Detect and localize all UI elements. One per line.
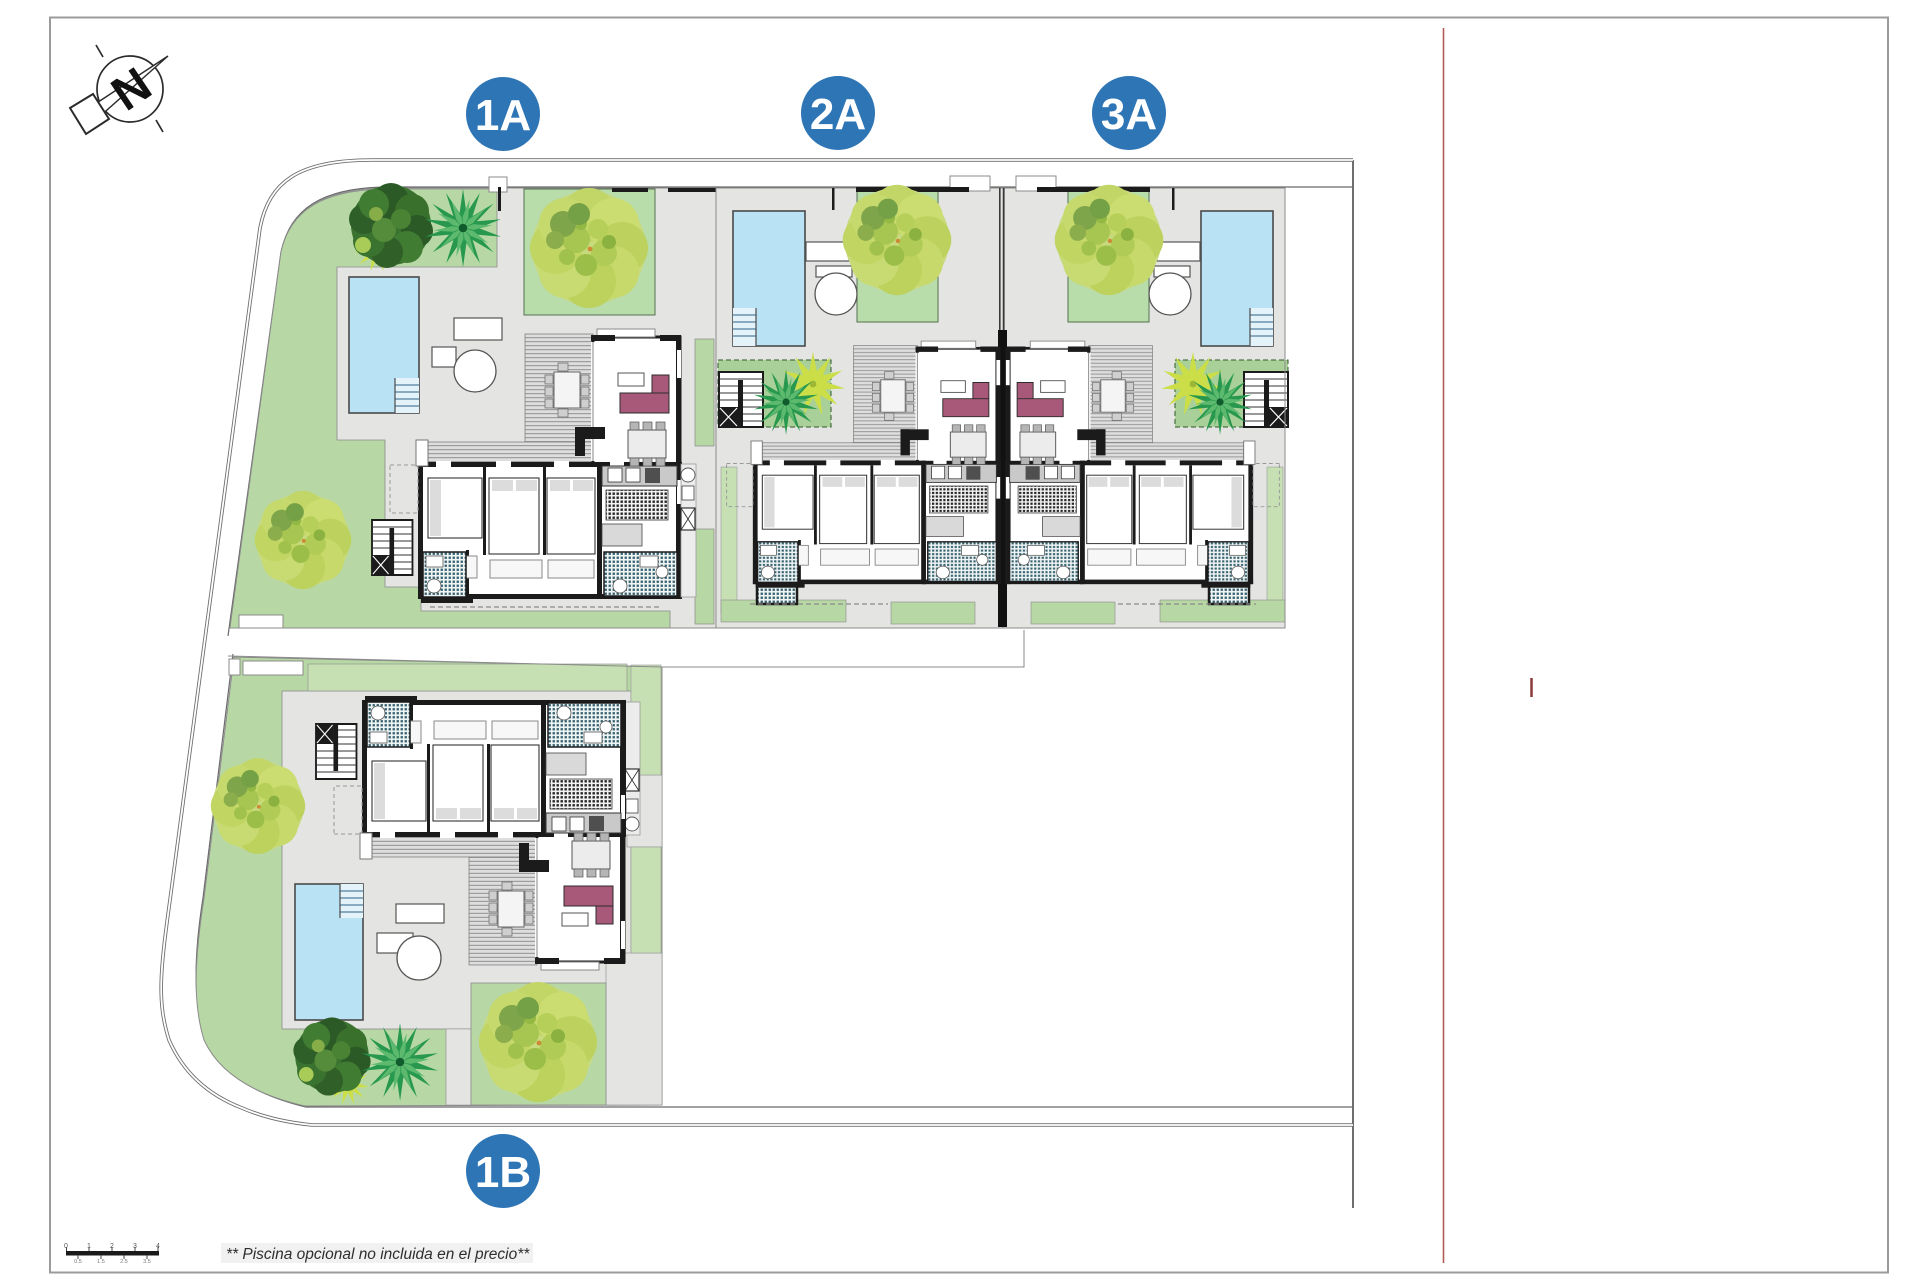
svg-text:0.5: 0.5 — [74, 1259, 82, 1265]
svg-text:3: 3 — [133, 1243, 137, 1250]
svg-text:** Piscina opcional no incluid: ** Piscina opcional no incluida en el pr… — [226, 1246, 530, 1263]
svg-text:2A: 2A — [810, 90, 866, 139]
svg-text:3.5: 3.5 — [143, 1259, 151, 1265]
svg-text:1: 1 — [87, 1243, 91, 1250]
svg-text:2: 2 — [110, 1243, 114, 1250]
svg-text:4: 4 — [156, 1243, 160, 1250]
svg-text:1B: 1B — [475, 1148, 531, 1197]
svg-text:2.5: 2.5 — [120, 1259, 128, 1265]
svg-text:0: 0 — [64, 1243, 68, 1250]
svg-text:1A: 1A — [475, 91, 531, 140]
svg-text:3A: 3A — [1101, 90, 1157, 139]
svg-text:1.5: 1.5 — [97, 1259, 105, 1265]
